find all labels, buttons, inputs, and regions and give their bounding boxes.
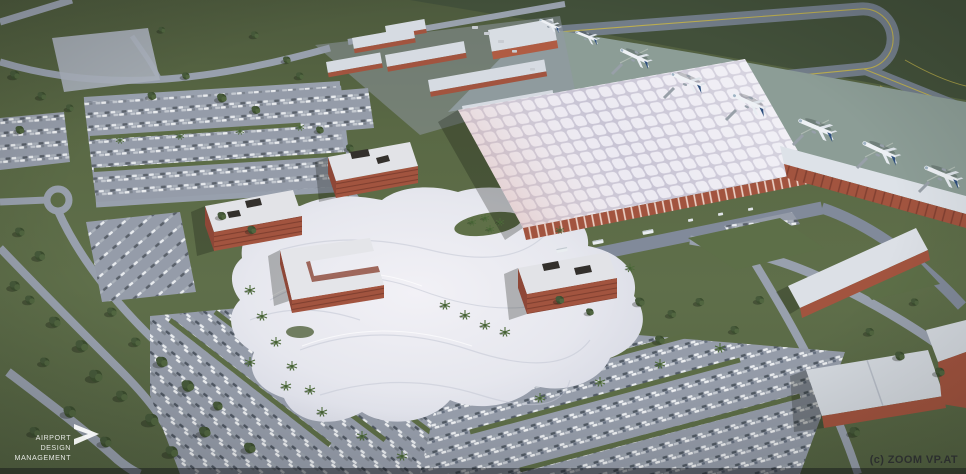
logo-line-3: MANAGEMENT bbox=[14, 453, 71, 462]
bottom-edge bbox=[0, 468, 966, 474]
rendering-canvas: AIRPORT DESIGN MANAGEMENT (c) ZOOM VP.AT bbox=[0, 0, 966, 474]
airport-aerial-rendering: AIRPORT DESIGN MANAGEMENT (c) ZOOM VP.AT bbox=[0, 0, 966, 474]
vignette bbox=[0, 0, 966, 474]
render-credit: (c) ZOOM VP.AT bbox=[870, 454, 958, 466]
logo-line-1: AIRPORT bbox=[36, 433, 71, 442]
logo-line-2: DESIGN bbox=[40, 443, 71, 452]
